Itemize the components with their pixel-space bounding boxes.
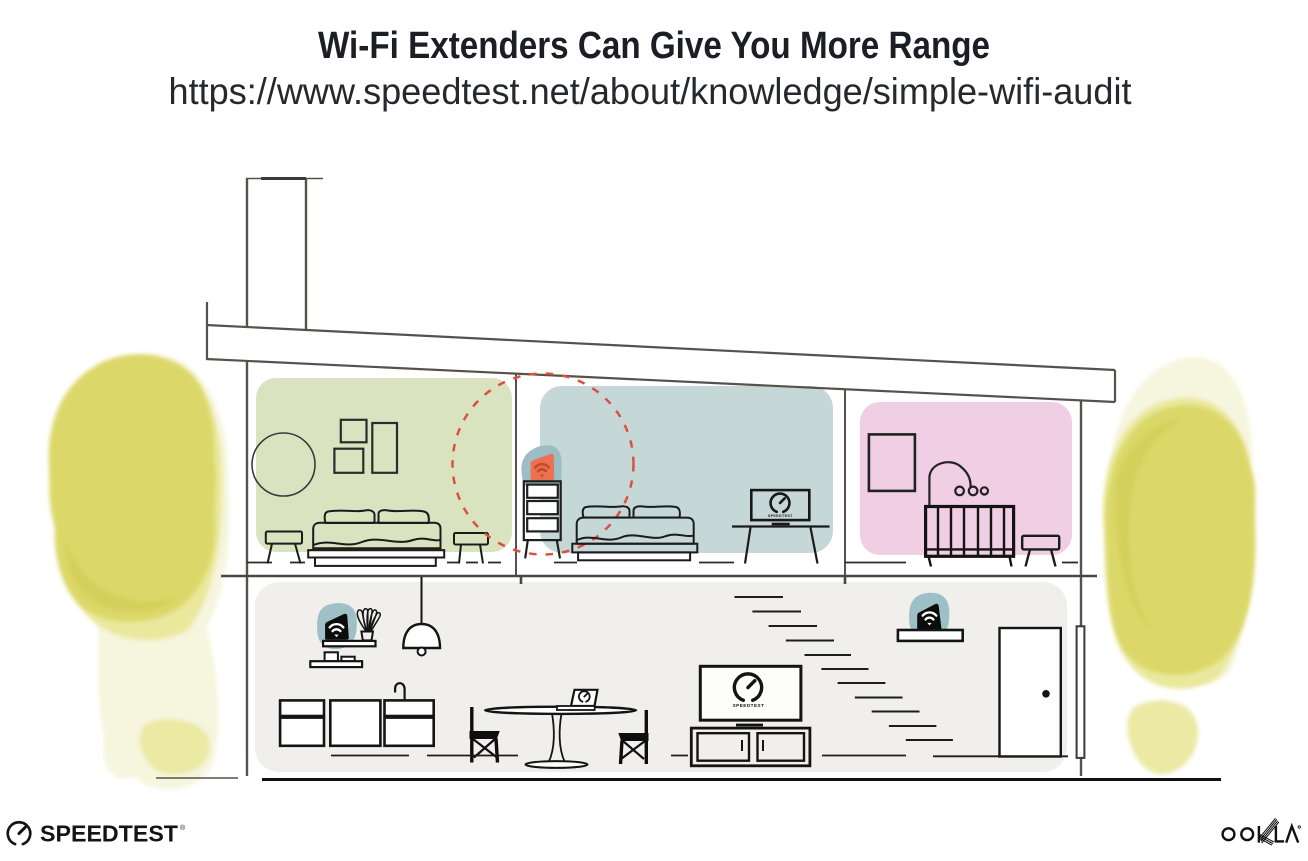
svg-text:®: ®	[180, 824, 186, 832]
svg-text:SPEEDTEST: SPEEDTEST	[733, 703, 765, 708]
svg-text:Wi-Fi Extenders Can Give You M: Wi-Fi Extenders Can Give You More Range	[318, 25, 990, 67]
svg-text:SPEEDTEST: SPEEDTEST	[768, 514, 793, 518]
svg-text:SPEEDTEST: SPEEDTEST	[40, 821, 178, 847]
svg-text:https://www.speedtest.net/abou: https://www.speedtest.net/about/knowledg…	[169, 71, 1133, 112]
